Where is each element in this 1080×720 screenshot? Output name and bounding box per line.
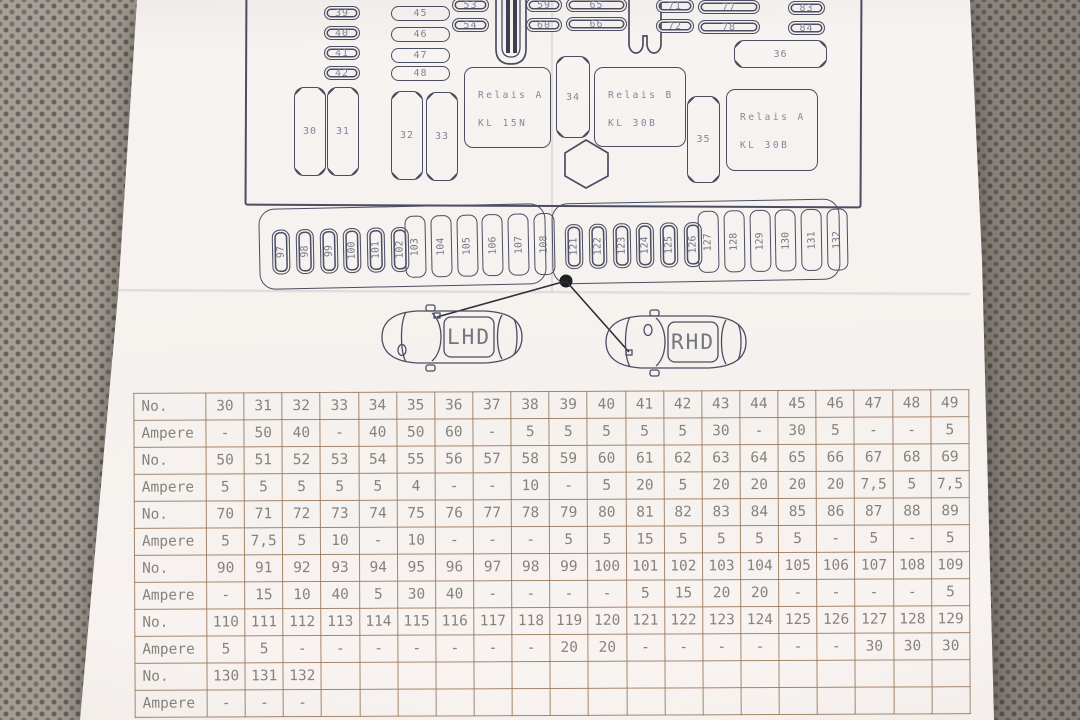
table-cell	[398, 689, 436, 716]
table-cell: 20	[702, 472, 740, 499]
fuse-36: 36	[734, 40, 827, 68]
table-cell: 5	[816, 417, 854, 444]
table-cell: -	[779, 633, 817, 660]
table-cell: 111	[245, 609, 283, 636]
car-rhd: RHD	[606, 310, 746, 376]
table-cell: 118	[512, 608, 550, 635]
fuse-122: 122	[588, 224, 607, 269]
table-cell: 132	[283, 663, 321, 690]
table-cell: 50	[244, 420, 282, 447]
table-cell: 108	[893, 552, 931, 579]
car-detail-circle	[398, 345, 406, 356]
table-cell: 105	[779, 552, 817, 579]
ampere-row-label: Ampere	[135, 690, 207, 717]
fuse-104: 104	[430, 215, 452, 277]
fuse-53-label: 53	[463, 0, 477, 11]
table-cell: 5	[207, 636, 245, 663]
fuse-strip-97-108: 979899100101102103104105106107108	[258, 203, 547, 290]
fuse-48-label: 48	[413, 68, 427, 79]
fuse-72: 72	[656, 19, 694, 33]
table-cell: 10	[283, 582, 321, 609]
fuse-40-label: 40	[335, 28, 349, 39]
fuse-31: 31	[327, 87, 359, 176]
table-cell: -	[703, 634, 741, 661]
table-cell: 78	[511, 500, 549, 527]
table-cell: 68	[893, 444, 931, 471]
no-row: No.130131132	[135, 660, 970, 691]
table-cell: 115	[397, 608, 435, 635]
table-cell: -	[207, 690, 245, 717]
table-cell	[550, 688, 588, 715]
fuse-83: 83	[788, 1, 825, 15]
table-cell: 72	[283, 501, 321, 528]
fuse-107: 107	[508, 213, 530, 275]
fuse-71-label: 71	[668, 1, 682, 12]
table-cell: 31	[244, 393, 282, 420]
ampere-row-label: Ampere	[135, 582, 207, 609]
fuse-32: 32	[391, 91, 423, 180]
car-windshield	[432, 313, 441, 361]
fuse-103-label: 103	[410, 238, 421, 256]
pointer-line-rhd	[566, 281, 629, 352]
table-cell: 96	[435, 554, 473, 581]
pointer-line-lhd	[437, 281, 566, 317]
table-cell	[893, 660, 931, 687]
fuse-124-label: 124	[640, 236, 651, 254]
table-cell: 85	[778, 498, 816, 525]
fuse-78: 78	[698, 20, 760, 34]
table-cell: -	[817, 525, 855, 552]
table-cell: 114	[359, 608, 397, 635]
table-cell: 20	[778, 471, 816, 498]
table-cell	[474, 689, 512, 716]
table-cell: 119	[550, 607, 588, 634]
table-cell: 112	[283, 609, 321, 636]
fuse-105: 105	[456, 214, 478, 276]
table-cell: 75	[397, 500, 435, 527]
relay-a-kl15n: Relais A KL 15N	[464, 67, 551, 148]
table-cell: 40	[358, 419, 396, 446]
table-cell: 98	[512, 554, 550, 581]
fuse-42: 42	[324, 66, 360, 80]
table-cell: 51	[244, 447, 282, 474]
table-cell: -	[588, 580, 626, 607]
table-cell: 30	[855, 633, 893, 660]
fuse-77: 77	[698, 0, 760, 14]
fuse-65-label: 65	[589, 0, 603, 11]
no-row-label: No.	[134, 501, 206, 528]
table-cell: 67	[854, 444, 892, 471]
table-cell: -	[398, 635, 436, 662]
table-cell: 89	[931, 498, 969, 525]
fuse-34: 34	[556, 56, 590, 138]
table-cell: -	[473, 419, 511, 446]
table-cell: 106	[817, 552, 855, 579]
table-cell: 88	[893, 498, 931, 525]
ampere-row: Ampere---	[135, 687, 970, 718]
car-lhd-label: LHD	[447, 325, 491, 349]
table-cell	[474, 662, 512, 689]
car-mirror	[650, 310, 659, 316]
table-cell: -	[435, 473, 473, 500]
table-cell: 74	[359, 500, 397, 527]
table-cell	[627, 661, 665, 688]
table-cell: -	[436, 635, 474, 662]
table-cell: 55	[397, 446, 435, 473]
fuse-41: 41	[324, 46, 360, 60]
table-cell: 5	[588, 472, 626, 499]
fuse-127: 127	[697, 211, 719, 273]
relay-b-kl30b-line1: Relais B	[608, 82, 685, 110]
ampere-row: Ampere555554--10-5205202020207,557,5	[134, 471, 969, 502]
table-cell: 53	[320, 446, 358, 473]
fuse-131: 131	[801, 209, 823, 271]
table-cell: 7,5	[245, 528, 283, 555]
ampere-row-label: Ampere	[134, 420, 206, 447]
table-cell: 5	[244, 474, 282, 501]
table-cell: 5	[664, 418, 702, 445]
table-cell: 93	[321, 554, 359, 581]
table-cell: 20	[550, 634, 588, 661]
fuse-59: 59	[526, 0, 562, 12]
table-cell: 65	[778, 444, 816, 471]
table-cell	[398, 662, 436, 689]
table-cell: 30	[893, 633, 931, 660]
fuse-71: 71	[656, 0, 694, 13]
fuse-106-label: 106	[487, 236, 498, 254]
table-cell: 59	[549, 445, 587, 472]
fuse-132: 132	[826, 208, 848, 270]
table-cell: 39	[549, 391, 587, 418]
table-cell: 83	[702, 499, 740, 526]
table-cell: 5	[283, 528, 321, 555]
table-cell: 92	[283, 555, 321, 582]
fuse-78-label: 78	[722, 22, 736, 33]
table-cell: 30	[702, 418, 740, 445]
table-cell: 34	[358, 392, 396, 419]
fuse-83-label: 83	[799, 3, 813, 14]
no-row: No.7071727374757677787980818283848586878…	[134, 498, 969, 529]
table-cell: 5	[550, 526, 588, 553]
table-cell: 40	[435, 581, 473, 608]
table-cell: -	[359, 527, 397, 554]
table-cell: 30	[932, 633, 970, 660]
table-cell: -	[549, 472, 587, 499]
table-cell: -	[817, 633, 855, 660]
car-detail-circle	[644, 325, 652, 336]
fuse-123-label: 123	[616, 237, 627, 255]
relay-a-kl30b-line2: KL 30B	[740, 132, 817, 160]
fuse-59-label: 59	[537, 0, 551, 11]
table-cell	[550, 661, 588, 688]
table-cell: 79	[550, 499, 588, 526]
table-cell: 44	[740, 391, 778, 418]
table-cell: 10	[511, 473, 549, 500]
fuse-131-label: 131	[806, 231, 817, 249]
car-mirror	[650, 370, 659, 376]
table-cell: -	[740, 418, 778, 445]
car-trunk-line	[514, 319, 517, 355]
fuse-132-label: 132	[832, 230, 843, 248]
table-cell: 20	[702, 580, 740, 607]
fuse-31-label: 31	[336, 126, 350, 137]
table-cell: 57	[473, 446, 511, 473]
table-cell: -	[359, 635, 397, 662]
table-cell: 129	[931, 606, 969, 633]
ampere-row-label: Ampere	[135, 636, 207, 663]
table-cell: 94	[359, 554, 397, 581]
fuse-108-label: 108	[539, 235, 550, 253]
table-cell: 7,5	[855, 471, 893, 498]
table-cell: 5	[664, 472, 702, 499]
table-cell: 4	[397, 473, 435, 500]
table-cell	[741, 688, 779, 715]
fuse-34-label: 34	[566, 92, 580, 103]
table-cell	[894, 687, 932, 714]
table-cell: 64	[740, 445, 778, 472]
fuse-72-label: 72	[668, 21, 682, 32]
table-cell: 80	[588, 499, 626, 526]
fuse-35: 35	[687, 96, 720, 183]
table-cell: 5	[931, 417, 969, 444]
fuse-129: 129	[749, 210, 771, 272]
table-cell: 5	[511, 419, 549, 446]
fuse-45: 45	[391, 6, 450, 21]
fuse-97-label: 97	[275, 246, 286, 258]
table-cell: -	[512, 527, 550, 554]
fuse-40: 40	[324, 26, 360, 40]
table-cell	[322, 689, 360, 716]
relay-a-kl30b-line1: Relais A	[740, 104, 817, 132]
table-cell: 101	[626, 553, 664, 580]
table-cell: 131	[245, 663, 283, 690]
fuse-48: 48	[391, 66, 450, 81]
photo-of-fuse-chart: Relais A KL 15N Relais B KL 30B Relais A…	[0, 0, 1080, 720]
fuse-98-label: 98	[299, 245, 310, 257]
table-cell: 48	[892, 390, 930, 417]
table-cell: 5	[206, 528, 244, 555]
fuse-128: 128	[723, 210, 745, 272]
table-cell: 46	[816, 390, 854, 417]
car-hood-line	[626, 317, 631, 367]
car-rear-window	[722, 320, 727, 364]
table-cell: -	[474, 635, 512, 662]
car-body	[606, 316, 746, 368]
fuse-125-label: 125	[664, 236, 675, 254]
table-cell: -	[512, 635, 550, 662]
table-cell: -	[283, 690, 321, 717]
relay-a-kl30b: Relais A KL 30B	[726, 89, 818, 171]
ampere-row: Ampere-5040-405060-5555530-305--5	[134, 417, 969, 448]
table-cell	[627, 688, 665, 715]
table-cell: 81	[626, 499, 664, 526]
table-cell: 15	[626, 526, 664, 553]
table-cell: 102	[664, 553, 702, 580]
table-cell: -	[435, 527, 473, 554]
fuse-101-label: 101	[371, 241, 382, 259]
car-trunk-line	[738, 324, 741, 360]
car-rhd-label: RHD	[671, 330, 715, 354]
fuse-84: 84	[788, 21, 825, 35]
table-cell: 76	[435, 500, 473, 527]
table-cell: 109	[931, 552, 969, 579]
relay-a-kl15n-line2: KL 15N	[478, 110, 550, 138]
fuse-33-label: 33	[435, 131, 449, 142]
no-row-label: No.	[135, 609, 207, 636]
table-cell: 52	[282, 447, 320, 474]
table-cell: 20	[740, 472, 778, 499]
fuse-121: 121	[565, 224, 584, 269]
table-cell: 5	[625, 418, 663, 445]
table-cell	[321, 662, 359, 689]
table-cell: 20	[816, 471, 854, 498]
no-row-label: No.	[135, 663, 207, 690]
table-cell: 33	[320, 392, 358, 419]
table-cell: 82	[664, 499, 702, 526]
car-body	[382, 311, 522, 363]
table-cell: 71	[244, 501, 282, 528]
fuse-84-label: 84	[799, 23, 813, 34]
table-cell	[779, 660, 817, 687]
table-cell: 5	[359, 581, 397, 608]
table-cell: 56	[435, 446, 473, 473]
table-cell: 47	[854, 390, 892, 417]
table-cell: -	[320, 419, 358, 446]
fuse-36-label: 36	[773, 49, 787, 60]
fuse-46-label: 46	[413, 29, 427, 40]
fuse-104-label: 104	[436, 237, 447, 255]
fuse-66: 66	[566, 17, 627, 31]
table-cell: 20	[741, 580, 779, 607]
table-cell	[436, 662, 474, 689]
table-cell: 128	[893, 606, 931, 633]
car-rear-window	[498, 315, 503, 359]
table-cell: 5	[931, 579, 969, 606]
table-cell: 127	[855, 606, 893, 633]
fuse-66-label: 66	[589, 19, 603, 30]
fuse-124: 124	[636, 223, 655, 268]
fuse-105-label: 105	[461, 237, 472, 255]
table-cell: 5	[778, 525, 816, 552]
fuse-122-label: 122	[592, 237, 603, 255]
fuse-33: 33	[426, 92, 458, 181]
table-cell: 90	[207, 555, 245, 582]
fuse-106: 106	[482, 214, 504, 276]
table-cell	[817, 660, 855, 687]
table-cell: 66	[816, 444, 854, 471]
car-roof	[444, 317, 494, 357]
table-cell: 30	[206, 393, 244, 420]
table-cell: 63	[702, 445, 740, 472]
table-cell: 5	[245, 636, 283, 663]
fuse-107-label: 107	[513, 235, 524, 253]
fuse-45-label: 45	[413, 8, 427, 19]
table-cell: 73	[321, 500, 359, 527]
no-row-label: No.	[135, 555, 207, 582]
table-cell: 54	[359, 446, 397, 473]
amperage-table: No.3031323334353637383940414243444546474…	[133, 389, 970, 718]
table-cell: 40	[282, 420, 320, 447]
fuse-39-label: 39	[335, 8, 349, 19]
ampere-row: Ampere55-------2020------303030	[135, 633, 970, 664]
table-cell: -	[473, 527, 511, 554]
table-cell	[817, 687, 855, 714]
table-cell: -	[665, 634, 703, 661]
table-cell: 95	[397, 554, 435, 581]
fuse-101: 101	[367, 227, 386, 272]
relay-b-kl30b-line2: KL 30B	[608, 110, 685, 138]
table-cell: 20	[626, 472, 664, 499]
table-cell	[512, 689, 550, 716]
table-cell: 41	[625, 391, 663, 418]
table-cell: 126	[817, 606, 855, 633]
fuse-65: 65	[566, 0, 627, 12]
table-cell: -	[855, 579, 893, 606]
fuse-47-label: 47	[413, 50, 427, 61]
table-cell: -	[893, 525, 931, 552]
table-cell: 120	[588, 607, 626, 634]
fuse-41-label: 41	[335, 48, 349, 59]
table-cell	[588, 661, 626, 688]
table-cell: 60	[435, 419, 473, 446]
fuse-125: 125	[660, 222, 679, 267]
table-cell: 84	[740, 499, 778, 526]
table-cell: 42	[663, 391, 701, 418]
table-cell: 104	[740, 553, 778, 580]
table-cell: 130	[207, 663, 245, 690]
car-windshield	[656, 318, 665, 366]
table-cell: 10	[321, 527, 359, 554]
paper-shadow: Relais A KL 15N Relais B KL 30B Relais A…	[0, 0, 1080, 720]
fuse-strip-121-132: 121122123124125126127128129130131132	[551, 198, 840, 284]
table-cell: -	[550, 580, 588, 607]
table-cell: 77	[473, 500, 511, 527]
table-cell: 5	[664, 526, 702, 553]
table-cell: 5	[206, 474, 244, 501]
table-cell: 125	[779, 606, 817, 633]
fusebox-location-marker	[434, 313, 440, 318]
ampere-row: Ampere-15104053040----5152020----5	[135, 579, 970, 610]
table-cell	[741, 661, 779, 688]
table-cell	[703, 661, 741, 688]
table-cell: 87	[855, 498, 893, 525]
no-row-label: No.	[134, 447, 206, 474]
table-cell: -	[741, 634, 779, 661]
table-cell: 97	[473, 554, 511, 581]
table-cell: -	[473, 473, 511, 500]
table-cell: 5	[702, 526, 740, 553]
relay-a-kl15n-line1: Relais A	[478, 82, 550, 110]
table-cell: 5	[740, 526, 778, 553]
table-cell: 62	[664, 445, 702, 472]
fuse-99-label: 99	[323, 245, 334, 257]
table-cell	[360, 689, 398, 716]
table-cell: -	[207, 582, 245, 609]
table-cell: -	[854, 417, 892, 444]
table-cell: 86	[817, 498, 855, 525]
table-cell: 5	[931, 525, 969, 552]
no-row-label: No.	[134, 393, 206, 420]
fuse-100: 100	[343, 228, 362, 273]
table-cell: 58	[511, 446, 549, 473]
table-cell: 103	[702, 553, 740, 580]
table-cell: 91	[245, 555, 283, 582]
table-cell	[855, 660, 893, 687]
table-cell	[360, 662, 398, 689]
table-cell: 35	[396, 392, 434, 419]
table-cell: 100	[588, 553, 626, 580]
table-cell: 49	[930, 390, 968, 417]
